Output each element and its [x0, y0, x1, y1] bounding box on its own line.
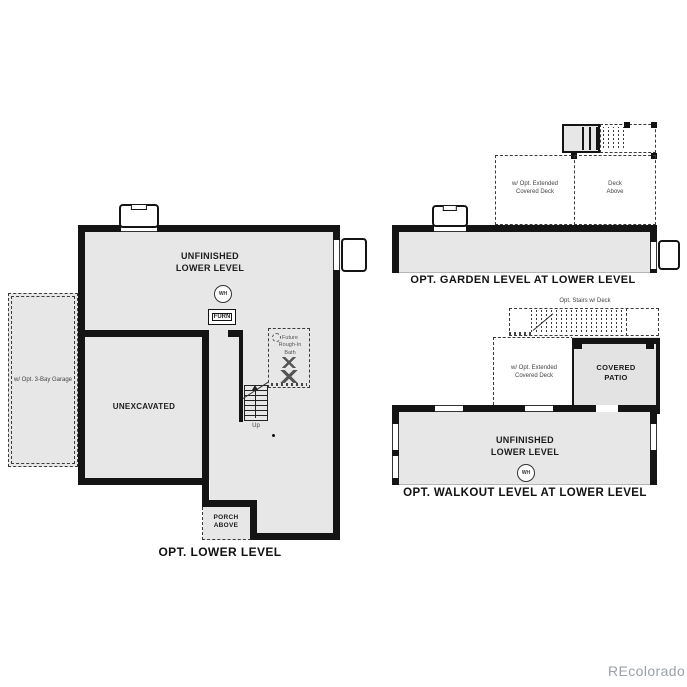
window-well-notch — [443, 206, 457, 211]
unexcavated-label: UNEXCAVATED — [86, 402, 202, 412]
stairs-up-label: Up — [246, 422, 266, 430]
wall-bottom — [250, 533, 340, 540]
window-right — [333, 240, 340, 270]
deck-post — [624, 122, 630, 128]
opt-garage-area: w/ Opt. 3-Bay Garage — [8, 293, 78, 467]
walkout-window-top-1 — [435, 405, 463, 412]
bath-fixture-x1 — [277, 357, 301, 368]
floorplan-sheet: w/ Opt. 3-Bay Garage Up — [0, 0, 687, 687]
lower-main-label: UNFINISHED LOWER LEVEL — [130, 251, 290, 274]
garden-strip-fill — [392, 225, 657, 273]
garden-wall-left — [392, 225, 399, 273]
unexcavated-wall-bottom — [78, 478, 209, 485]
porch-label: PORCH ABOVE — [204, 514, 248, 531]
walkout-stairs-treads — [531, 310, 626, 334]
porch-dashed-bottom — [202, 539, 251, 540]
wall-left — [78, 225, 85, 485]
walkout-level-title: OPT. WALKOUT LEVEL AT LOWER LEVEL — [385, 487, 665, 499]
garden-deck-divider — [574, 155, 575, 225]
walkout-window-right — [650, 424, 657, 450]
patio-wall-left — [572, 338, 574, 412]
window-well-notch — [131, 205, 147, 210]
garden-wall-top — [392, 225, 657, 232]
water-heater-label: WH — [522, 470, 530, 476]
stair-arrow-line — [255, 390, 256, 418]
water-heater-icon: WH — [517, 464, 535, 482]
walkout-window-top-2 — [525, 405, 553, 412]
garden-deck-ext-label: w/ Opt. Extended Covered Deck — [497, 180, 573, 196]
lower-level-title: OPT. LOWER LEVEL — [140, 545, 300, 559]
garden-stair-treads-dashed — [603, 127, 627, 150]
stair-arrow-head — [252, 385, 258, 390]
furnace-icon: FURN — [208, 309, 236, 325]
walkout-window-left-2 — [392, 456, 399, 478]
bath-fixture-x2 — [273, 370, 305, 383]
covered-patio-label: COVERED PATIO — [585, 363, 647, 383]
porch-wall-top — [202, 500, 257, 507]
water-heater-icon: WH — [214, 285, 232, 303]
walkout-stairs-hatch — [509, 332, 531, 336]
garden-level-title: OPT. GARDEN LEVEL AT LOWER LEVEL — [393, 274, 653, 286]
window-well-right — [341, 238, 367, 272]
opt-garage-label: w/ Opt. 3-Bay Garage — [11, 376, 75, 384]
stair-wall — [239, 330, 243, 422]
bath-hatch — [271, 383, 307, 386]
patio-post — [646, 341, 654, 349]
porch-wall-right — [250, 507, 257, 540]
garden-window-right — [650, 242, 657, 269]
walkout-window-left-1 — [392, 424, 399, 450]
patio-wall-right — [656, 338, 660, 414]
water-heater-label: WH — [219, 291, 227, 297]
garden-window-well-right — [658, 240, 680, 270]
walkout-main-label: UNFINISHED LOWER LEVEL — [445, 435, 605, 458]
garden-deck-above-label: Deck Above — [590, 180, 640, 196]
window-well-top — [119, 204, 159, 228]
furnace-label: FURN — [214, 314, 231, 320]
unexcavated-wall-top — [78, 330, 209, 337]
future-bath-label: Future Rough-In Bath — [272, 335, 308, 357]
garden-window-well-top — [432, 205, 468, 227]
wall-top — [78, 225, 340, 232]
patio-post — [574, 341, 582, 349]
recolorado-watermark: REcolorado — [608, 663, 684, 679]
wall-right — [333, 225, 340, 540]
walkout-stairs-divider — [626, 308, 627, 336]
garden-stair-treads-solid — [582, 127, 598, 150]
walkout-deck-ext-label: w/ Opt. Extended Covered Deck — [496, 364, 572, 380]
walkout-patio-door — [596, 405, 618, 412]
porch-dashed-left — [202, 507, 203, 540]
walkout-stairs-label: Opt. Stairs w/ Deck — [530, 297, 640, 305]
deck-post — [651, 122, 657, 128]
door-dot — [272, 434, 275, 437]
